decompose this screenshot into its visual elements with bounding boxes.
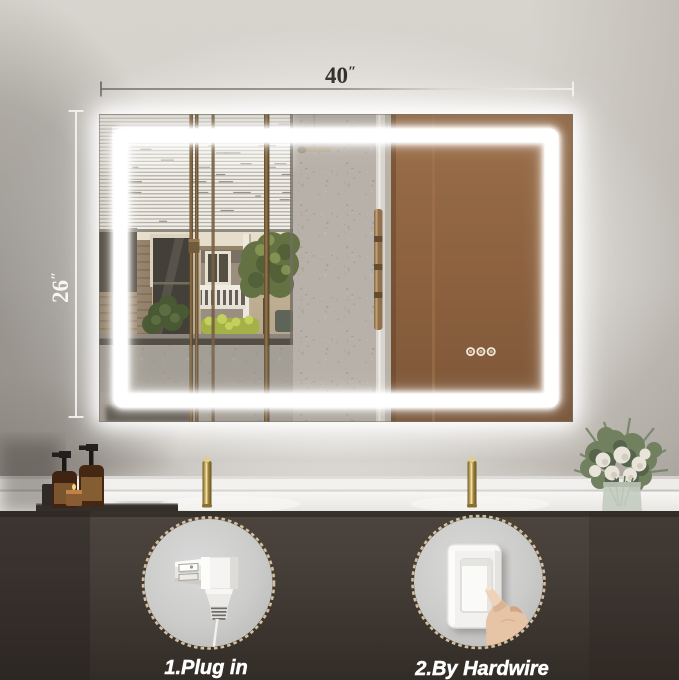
svg-text:1.Plug in: 1.Plug in [164,657,247,679]
svg-text:2.By Hardwire: 2.By Hardwire [414,658,548,680]
